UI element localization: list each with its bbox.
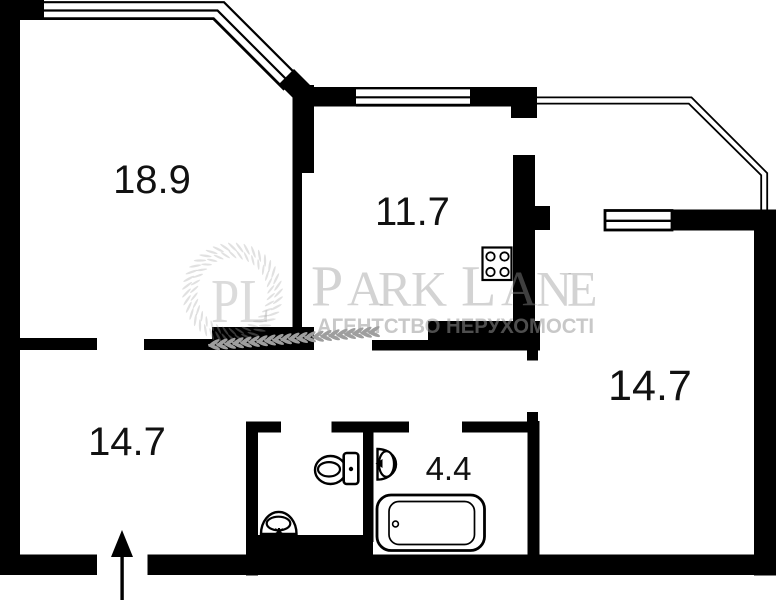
svg-text:A: A [501,261,537,317]
svg-text:L: L [461,254,496,319]
svg-text:PL: PL [211,267,270,336]
svg-text:E: E [567,261,598,317]
svg-text:K: K [411,261,447,317]
svg-text:14.7: 14.7 [88,420,166,464]
svg-text:11.7: 11.7 [375,190,450,234]
svg-text:4.4: 4.4 [426,450,472,487]
svg-text:18.9: 18.9 [113,158,191,202]
svg-text:14.7: 14.7 [608,362,692,410]
svg-text:R: R [378,261,412,317]
svg-text:P: P [311,254,343,319]
